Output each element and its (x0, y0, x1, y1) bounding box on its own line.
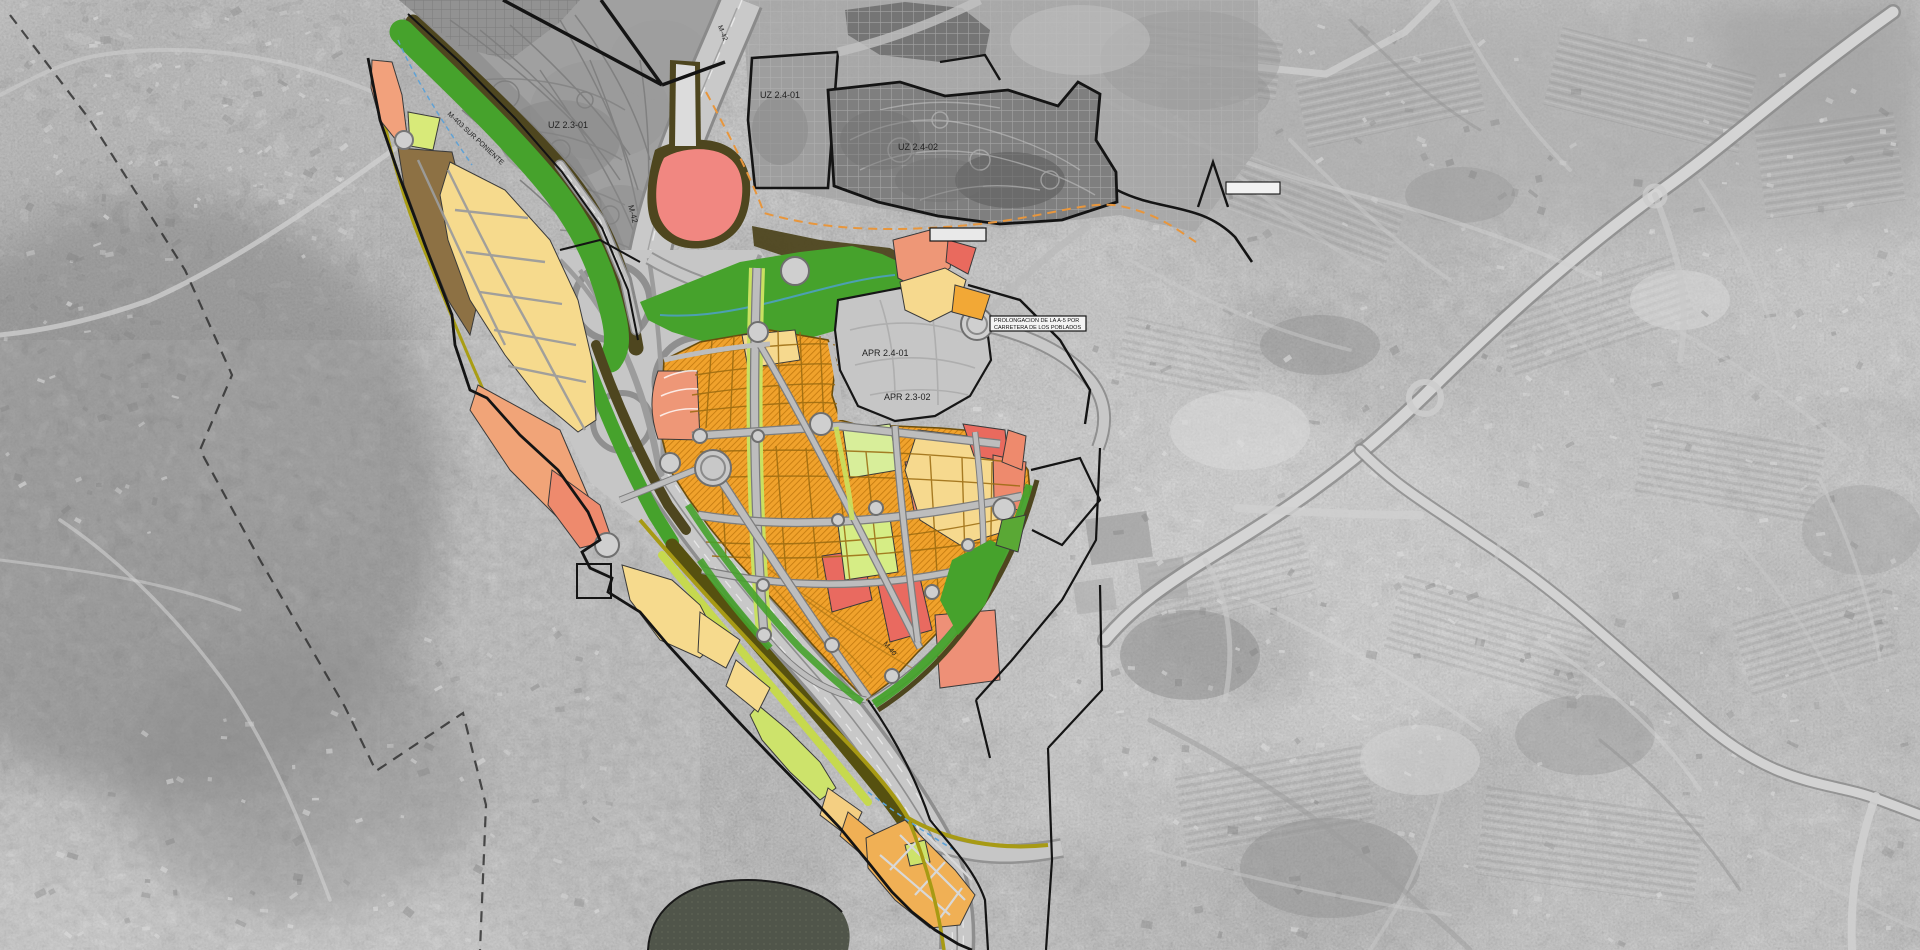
svg-text:UZ 2.4-02: UZ 2.4-02 (898, 142, 938, 152)
svg-text:APR 2.3-02: APR 2.3-02 (884, 392, 931, 402)
svg-text:PROLONGACION DE LA A-5 POR: PROLONGACION DE LA A-5 POR (994, 318, 1079, 324)
svg-text:UZ 2.4-01: UZ 2.4-01 (760, 90, 800, 100)
svg-text:APR 2.4-01: APR 2.4-01 (862, 348, 909, 358)
svg-text:UZ 2.3-01: UZ 2.3-01 (548, 120, 588, 130)
svg-text:CARRETERA DE LOS POBLADOS: CARRETERA DE LOS POBLADOS (994, 325, 1081, 331)
